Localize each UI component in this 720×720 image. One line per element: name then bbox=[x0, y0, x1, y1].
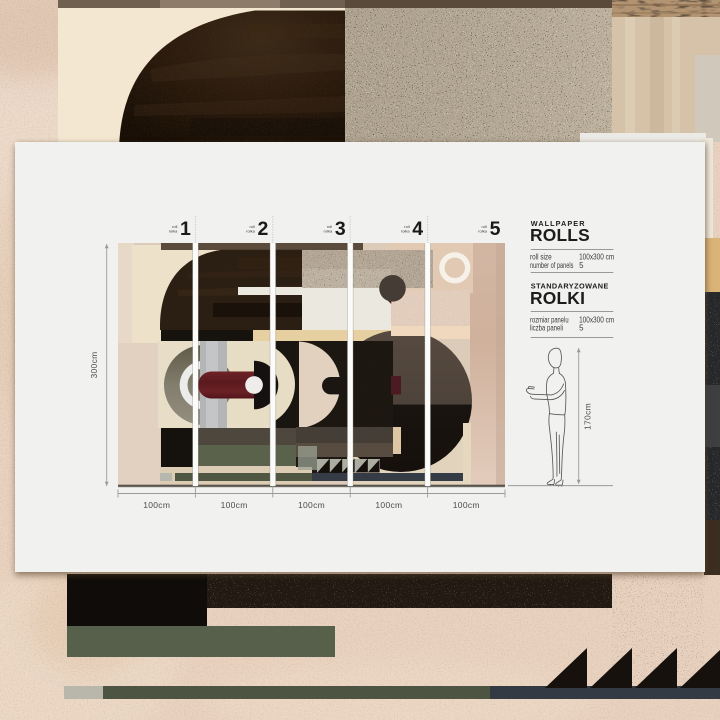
svg-text:100x300 cm: 100x300 cm bbox=[579, 316, 614, 325]
svg-text:rolka: rolka bbox=[246, 228, 255, 233]
svg-text:rolka: rolka bbox=[401, 228, 410, 233]
svg-text:100cm: 100cm bbox=[221, 500, 248, 510]
svg-text:170cm: 170cm bbox=[583, 403, 593, 430]
svg-text:2: 2 bbox=[257, 218, 268, 240]
svg-text:rolka: rolka bbox=[169, 228, 178, 233]
svg-text:ROLKI: ROLKI bbox=[530, 288, 585, 308]
svg-text:100cm: 100cm bbox=[143, 500, 170, 510]
svg-text:5: 5 bbox=[490, 218, 501, 240]
svg-text:rolka: rolka bbox=[478, 228, 487, 233]
svg-text:5: 5 bbox=[579, 261, 584, 270]
svg-text:100cm: 100cm bbox=[298, 500, 325, 510]
svg-text:100cm: 100cm bbox=[453, 500, 480, 510]
svg-text:ROLLS: ROLLS bbox=[530, 225, 590, 245]
svg-text:100cm: 100cm bbox=[375, 500, 402, 510]
svg-text:3: 3 bbox=[335, 218, 346, 240]
svg-text:rolka: rolka bbox=[324, 228, 333, 233]
svg-text:5: 5 bbox=[579, 323, 584, 332]
svg-text:100x300 cm: 100x300 cm bbox=[579, 253, 614, 262]
svg-text:4: 4 bbox=[412, 218, 423, 240]
svg-text:number of panels: number of panels bbox=[530, 261, 573, 270]
svg-text:300cm: 300cm bbox=[89, 351, 99, 378]
svg-text:liczba paneli: liczba paneli bbox=[530, 323, 563, 332]
svg-text:1: 1 bbox=[180, 218, 191, 240]
